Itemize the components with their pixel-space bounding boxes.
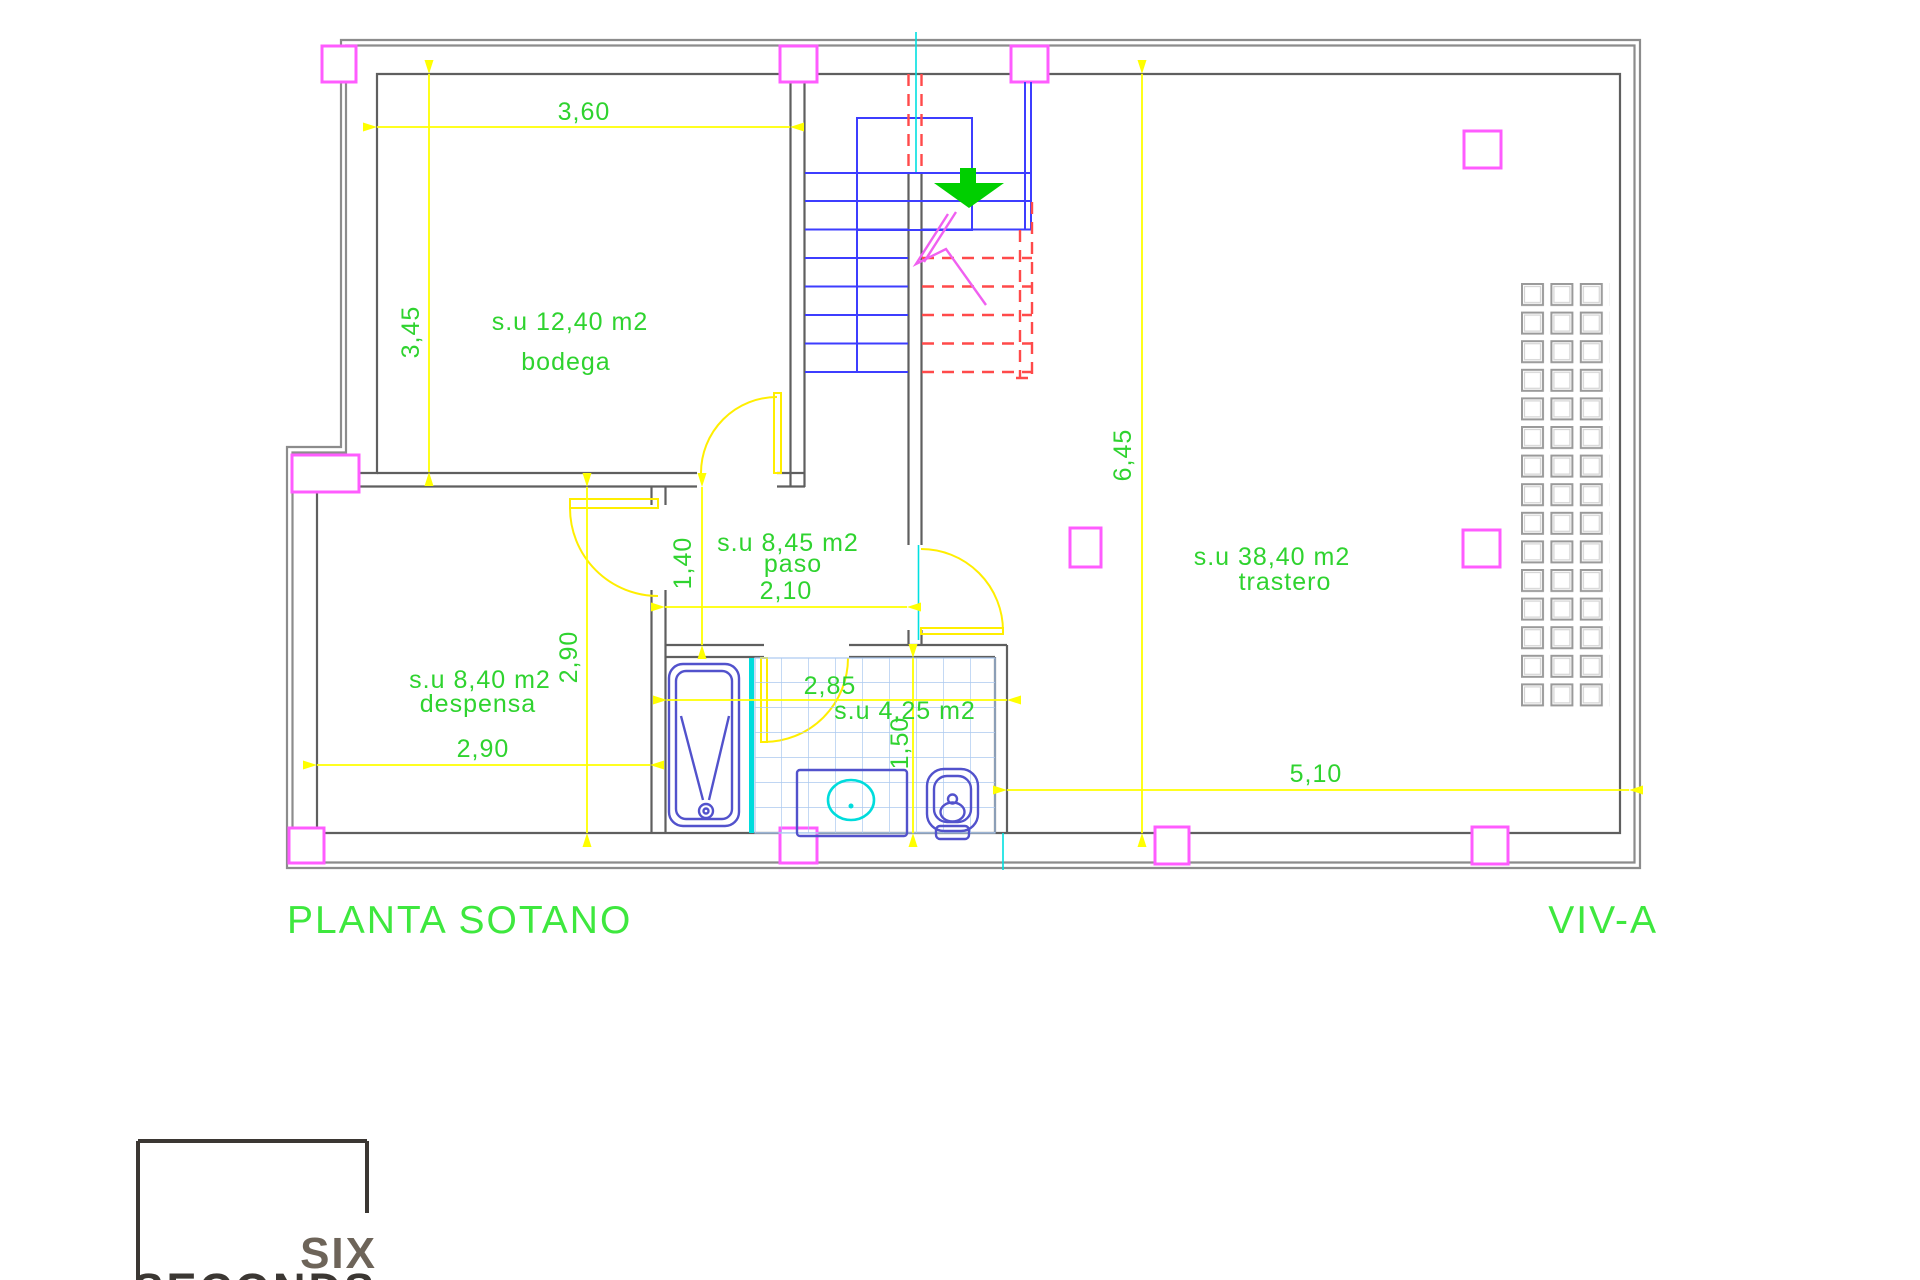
column [322,46,356,82]
column [1464,131,1501,168]
column [1070,528,1101,567]
dim-trastero-height: 6,45 [1109,429,1137,482]
column [1463,530,1500,567]
trastero-name-label: trastero [1239,568,1332,596]
column [1472,827,1508,864]
column [1011,46,1048,82]
column [1155,827,1189,864]
dim-bodega-width: 3,60 [558,98,611,126]
bathroom-area-label: s.u 4,25 m2 [834,697,976,725]
despensa-name-label: despensa [420,690,536,718]
staircase [805,74,1033,378]
column [289,828,324,863]
paso-name-label: paso [764,550,822,578]
bodega-area-label: s.u 12,40 m2 [492,308,649,336]
logo-text-line2: SECONDS [133,1264,377,1280]
bodega-door [701,393,781,473]
company-logo: SIX SECONDS [133,1141,377,1280]
floor-plan-svg: 3,60 3,45 2,90 2,90 1,40 2,10 2,85 1,50 … [0,0,1920,1280]
sheet-code: VIV-A [1548,899,1658,942]
dim-despensa-height: 2,90 [555,631,583,684]
despensa-door [570,499,658,596]
column [292,455,359,492]
dim-trastero-width: 5,10 [1290,760,1343,788]
tile-floor [755,658,995,833]
column [780,46,817,82]
trastero-door [921,549,1003,634]
dim-paso-height: 1,40 [669,537,697,590]
dim-bathroom-width: 2,85 [804,672,857,700]
trastero-area-label: s.u 38,40 m2 [1194,543,1351,571]
dim-bodega-height: 3,45 [397,306,425,359]
dim-paso-width: 2,10 [760,577,813,605]
plan-title: PLANTA SOTANO [287,899,632,942]
bathtub [669,664,739,826]
dim-despensa-width: 2,90 [457,735,510,763]
bodega-name-label: bodega [521,348,610,376]
storage-shelves [1521,283,1609,712]
